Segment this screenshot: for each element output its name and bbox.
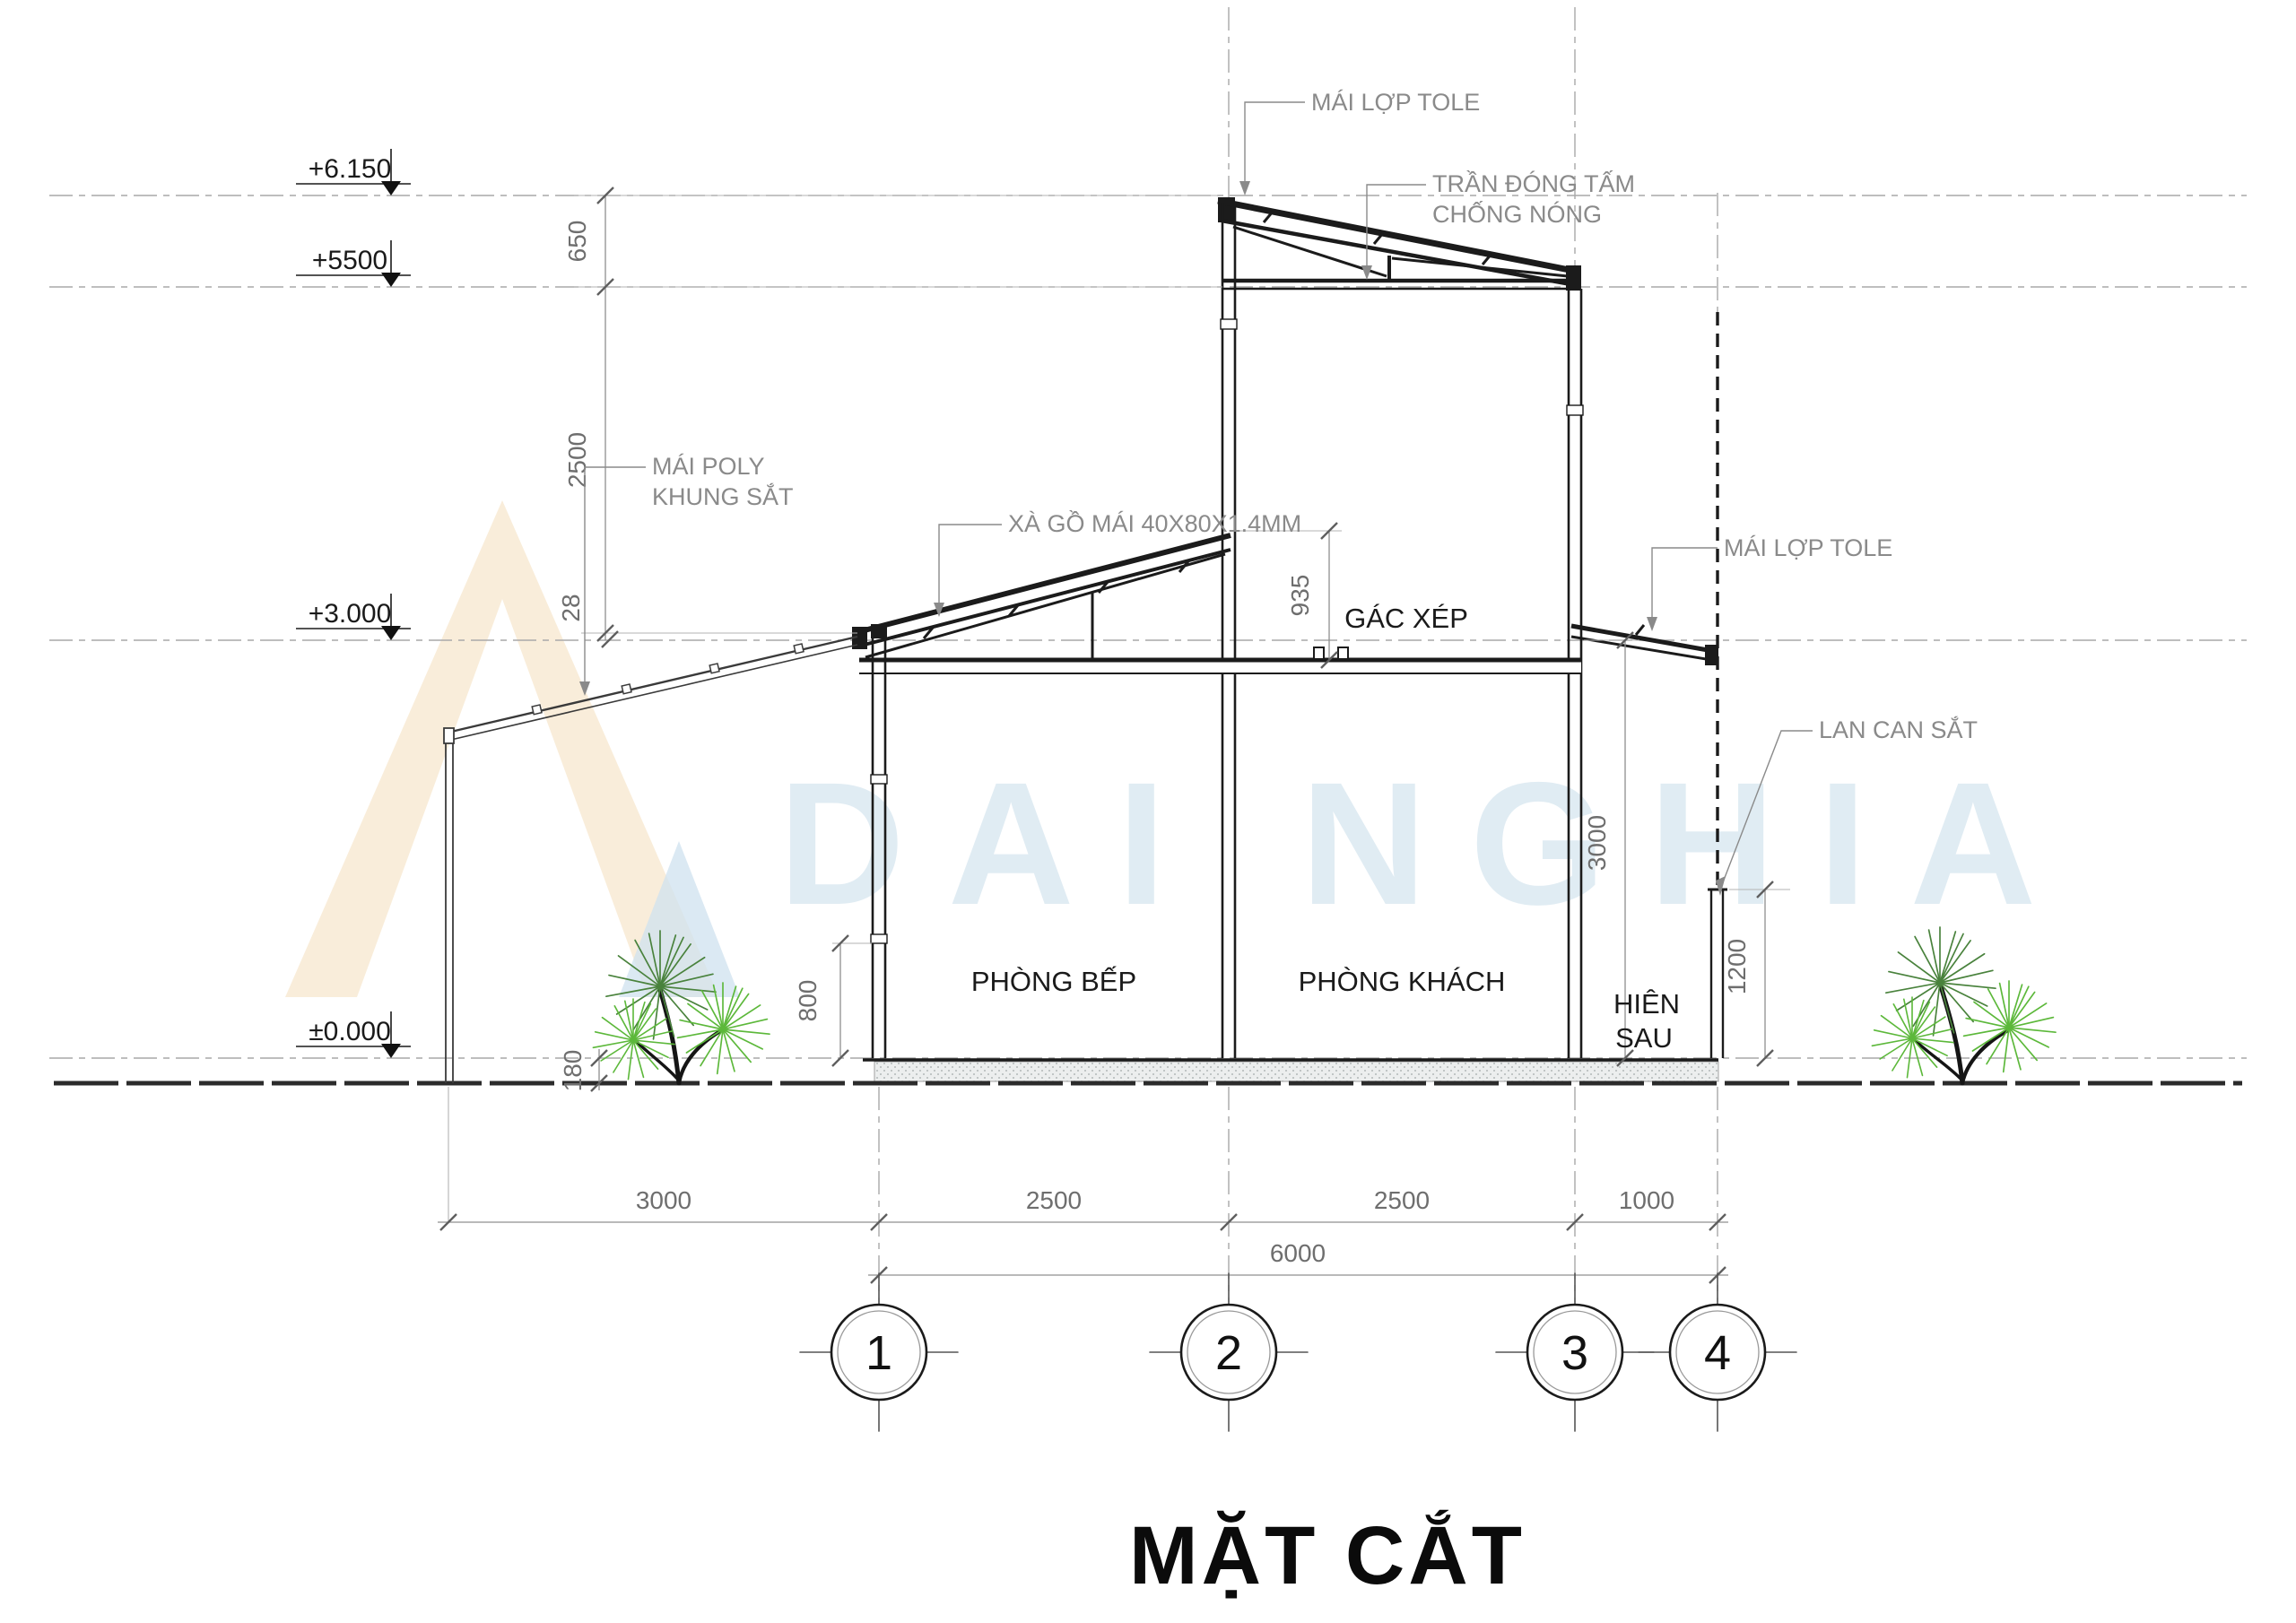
elevation-label: +6.150 — [309, 154, 392, 184]
bottom-dimension-row-1: 3000 2500 2500 1000 — [438, 1186, 1728, 1230]
dim-total-6000: 6000 — [1270, 1239, 1326, 1267]
grid-bubble-4: 4 — [1639, 1273, 1796, 1431]
elevation-label: +3.000 — [309, 599, 392, 629]
annotation-label: XÀ GỒ MÁI 40X80X1.4MM — [1008, 509, 1301, 537]
elevation-label: ±0.000 — [309, 1017, 391, 1046]
dim-1200-label: 1200 — [1723, 939, 1751, 994]
dim-28: 28 — [557, 594, 585, 621]
grid-bubble-2: 2 — [1150, 1273, 1308, 1431]
dim-935-label: 935 — [1286, 575, 1314, 617]
annotation-label: LAN CAN SẮT — [1819, 716, 1978, 743]
dim-bottom-2500a: 2500 — [1026, 1186, 1082, 1214]
dim-650: 650 — [563, 221, 591, 263]
elevation-marker-5500: +5500 — [296, 240, 411, 287]
elevation-marker-3000: +3.000 — [296, 594, 411, 640]
room-label-kitchen: PHÒNG BẾP — [971, 966, 1136, 997]
annotation-label: MÁI LỢP TOLE — [1311, 89, 1480, 116]
room-label-living: PHÒNG KHÁCH — [1299, 966, 1506, 997]
annotation-label: TRẦN ĐÓNG TẤM — [1432, 169, 1635, 197]
dim-bottom-3000: 3000 — [636, 1186, 691, 1214]
dim-800-label: 800 — [794, 980, 822, 1022]
grid-bubble-label: 3 — [1561, 1326, 1588, 1380]
section-drawing-sheet: DAI NGHIA — [0, 0, 2296, 1623]
bottom-dimension-row-2: 6000 — [868, 1239, 1728, 1283]
floor-slab — [874, 1062, 1718, 1081]
dim-800: 800 — [794, 935, 872, 1066]
watermark-text: DAI NGHIA — [778, 746, 2079, 942]
grid-bubble-label: 4 — [1704, 1326, 1731, 1380]
watermark-logo: DAI NGHIA — [285, 500, 2079, 997]
grid-bubbles: 1 2 3 4 — [800, 1273, 1796, 1431]
dim-bottom-1000: 1000 — [1619, 1186, 1674, 1214]
elevation-marker-0000: ±0.000 — [296, 1011, 411, 1058]
dim-bottom-2500b: 2500 — [1374, 1186, 1430, 1214]
room-label-loft: GÁC XÉP — [1344, 603, 1468, 634]
annotation-label: KHUNG SẮT — [652, 482, 794, 510]
dim-935: 935 — [1232, 523, 1342, 668]
drawing-title: MẶT CẮT — [1129, 1509, 1526, 1601]
grid-bubble-3: 3 — [1496, 1273, 1654, 1431]
dim-2500-left: 2500 — [563, 432, 591, 488]
section-drawing-svg: DAI NGHIA — [0, 0, 2296, 1623]
grid-bubble-1: 1 — [800, 1273, 958, 1431]
elevation-label: +5500 — [312, 246, 387, 275]
grid-bubble-label: 2 — [1215, 1326, 1242, 1380]
tree-right — [1872, 927, 2056, 1083]
room-label-porch-1: HIÊN — [1613, 988, 1680, 1020]
ground-and-slab — [54, 1060, 2242, 1083]
mezzanine-floor-beam — [859, 647, 1581, 673]
dim-180-label: 180 — [559, 1050, 587, 1092]
annotation-label: CHỐNG NÓNG — [1432, 199, 1602, 228]
elevation-marker-6150: +6.150 — [296, 149, 411, 195]
annotation-ceiling: TRẦN ĐÓNG TẤM CHỐNG NÓNG — [1361, 169, 1635, 280]
porch-roof — [1571, 625, 1718, 665]
room-label-porch-2: SAU — [1615, 1022, 1673, 1054]
dim-3000-right-label: 3000 — [1583, 815, 1611, 871]
annotation-label: MÁI LỢP TOLE — [1724, 534, 1892, 561]
annotation-roof-tole-right: MÁI LỢP TOLE — [1647, 534, 1892, 631]
annotation-label: MÁI POLY — [652, 453, 765, 480]
grid-bubble-label: 1 — [865, 1326, 892, 1380]
